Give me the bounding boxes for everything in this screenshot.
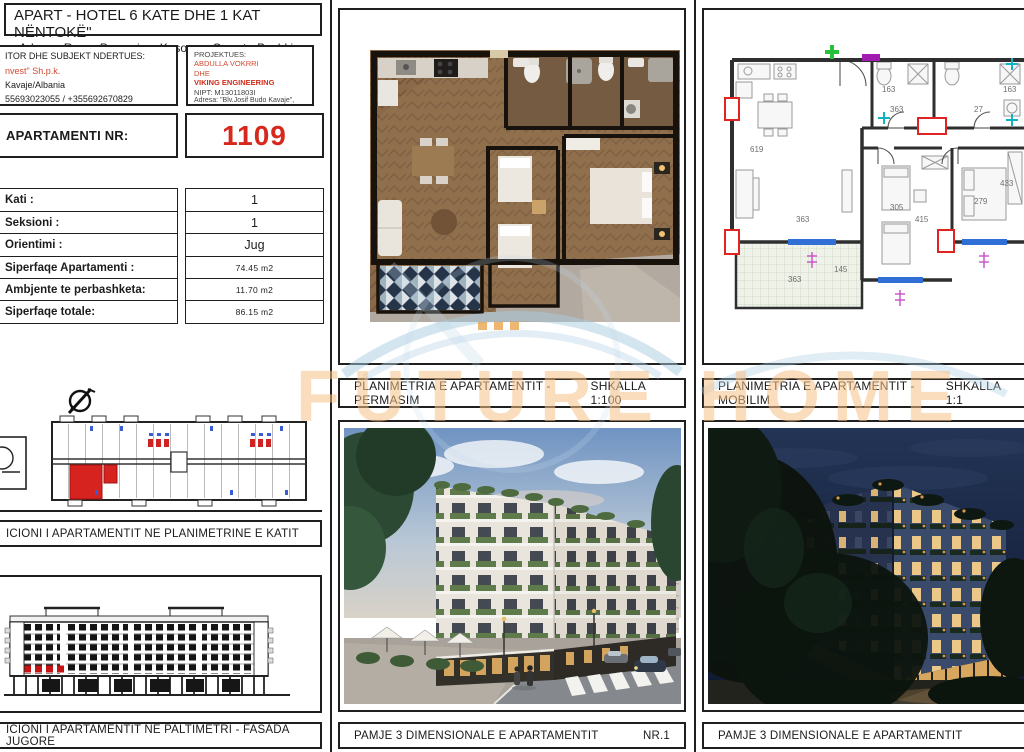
dim-text: 27 [974,105,983,114]
permasim-label-box: PLANIMETRIA E APARTAMENTIT - PERMASIM SH… [338,378,686,408]
spec-row-value: 11.70 m2 [185,278,324,302]
day-render-image [344,428,681,704]
spec-row-label: Seksioni : [0,211,178,235]
permasim-title: PLANIMETRIA E APARTAMENTIT - PERMASIM [354,379,591,407]
spec-row-value: 86.15 m2 [185,300,324,324]
compass-icon [69,389,95,413]
investor-heading: ITOR DHE SUBJEKT NDERTUES: [5,51,172,61]
dim-text: 433 [1000,179,1014,188]
spec-table-values: 1 1 Jug 74.45 m2 11.70 m2 86.15 m2 [185,190,324,324]
apartment-datasheet: APART - HOTEL 6 KATE DHE 1 KAT NËNTOKË" … [0,0,1024,752]
apartment-number-box: 1109 [185,113,324,158]
spec-row-label: Siperfaqe Apartamenti : [0,256,178,280]
dim-text: 145 [834,265,848,274]
section-callout-icon [0,437,26,489]
dim-text: 305 [890,203,904,212]
spec-row-label: Orientimi : [0,233,178,257]
title-box: APART - HOTEL 6 KATE DHE 1 KAT NËNTOKË" … [4,3,322,36]
spec-row-label: Kati : [0,188,178,212]
dim-text: 619 [750,145,764,154]
balcony-tile-floor [380,266,480,310]
dim-text: 163 [1003,85,1017,94]
spec-row-value: Jug [185,233,324,257]
night-render-title: PAMJE 3 DIMENSIONALE E APARTAMENTIT [718,730,963,742]
sheet-title: APART - HOTEL 6 KATE DHE 1 KAT NËNTOKË" [14,7,320,41]
day-render-label-box: PAMJE 3 DIMENSIONALE E APARTAMENTIT NR.1 [338,722,686,749]
facade-title: ICIONI I APARTAMENTIT NE PALTIMETRI - FA… [6,724,306,748]
designer-heading: PROJEKTUES: [194,50,308,59]
apartment-number-label: APARTAMENTI NR: [6,128,128,143]
rendered-floorplan-image [370,50,680,322]
designer-box: PROJEKTUES: ABDULLA VOKRRI DHE VIKING EN… [186,45,314,106]
divider-line [0,510,322,512]
dim-text: 363 [796,215,810,224]
dim-text: 363 [788,275,802,284]
spec-row-label: Siperfaqe totale: [0,300,178,324]
apartment-number-value: 1109 [222,120,287,152]
dim-text: 363 [890,105,904,114]
investor-location: Kavaje/Albania [5,80,172,90]
spec-row-label: Ambjente te perbashketa: [0,278,178,302]
mobilim-scale: SHKALLA 1:1 [946,379,1014,407]
mobilim-label-box: PLANIMETRIA E APARTAMENTIT - MOBILIM SHK… [702,378,1024,408]
day-render-title: PAMJE 3 DIMENSIONALE E APARTAMENTIT [354,730,599,742]
column-divider [694,0,696,752]
designer-address: Adresa: "Blv.Josif Budo Kavaje", [194,97,308,106]
spec-row-value: 1 [185,188,324,212]
permasim-scale: SHKALLA 1:100 [591,379,670,407]
position-plan-label-box: ICIONI I APARTAMENTIT NE PLANIMETRINE E … [0,520,322,547]
dim-text: 279 [974,197,988,206]
night-render-label-box: PAMJE 3 DIMENSIONALE E APARTAMENTIT [702,722,1024,749]
designer-name2: DHE [194,69,308,78]
designer-name3: VIKING ENGINEERING [194,78,308,87]
investor-phones: 55693023055 / +355692670829 [5,94,172,104]
designer-name1: ABDULLA VOKRRI [194,59,308,68]
spec-row-value: 1 [185,211,324,235]
designer-nipt: NIPT: M13011803I [194,88,308,97]
facade-label-box: ICIONI I APARTAMENTIT NE PALTIMETRI - FA… [0,722,322,749]
dim-text: 163 [882,85,896,94]
investor-box: ITOR DHE SUBJEKT NDERTUES: nvest" Sh.p.k… [0,45,178,106]
day-render-number: NR.1 [643,730,670,742]
position-plan-title: ICIONI I APARTAMENTIT NE PLANIMETRINE E … [6,528,299,540]
south-facade-elevation-drawing [0,592,322,710]
building-key-plan-drawing [0,382,322,508]
key-plan-building [52,416,306,506]
spec-row-value: 74.45 m2 [185,256,324,280]
mobilim-title: PLANIMETRIA E APARTAMENTIT - MOBILIM [718,379,946,407]
column-divider [330,0,332,752]
night-render-image [708,428,1024,704]
dim-text: 415 [915,215,929,224]
apartment-number-label-box: APARTAMENTI NR: [0,113,178,158]
technical-floorplan-drawing: 163 163 363 27 619 363 305 415 279 433 3… [712,40,1024,340]
spec-table-labels: Kati : Seksioni : Orientimi : Siperfaqe … [0,190,178,324]
investor-company: nvest" Sh.p.k. [5,66,172,76]
